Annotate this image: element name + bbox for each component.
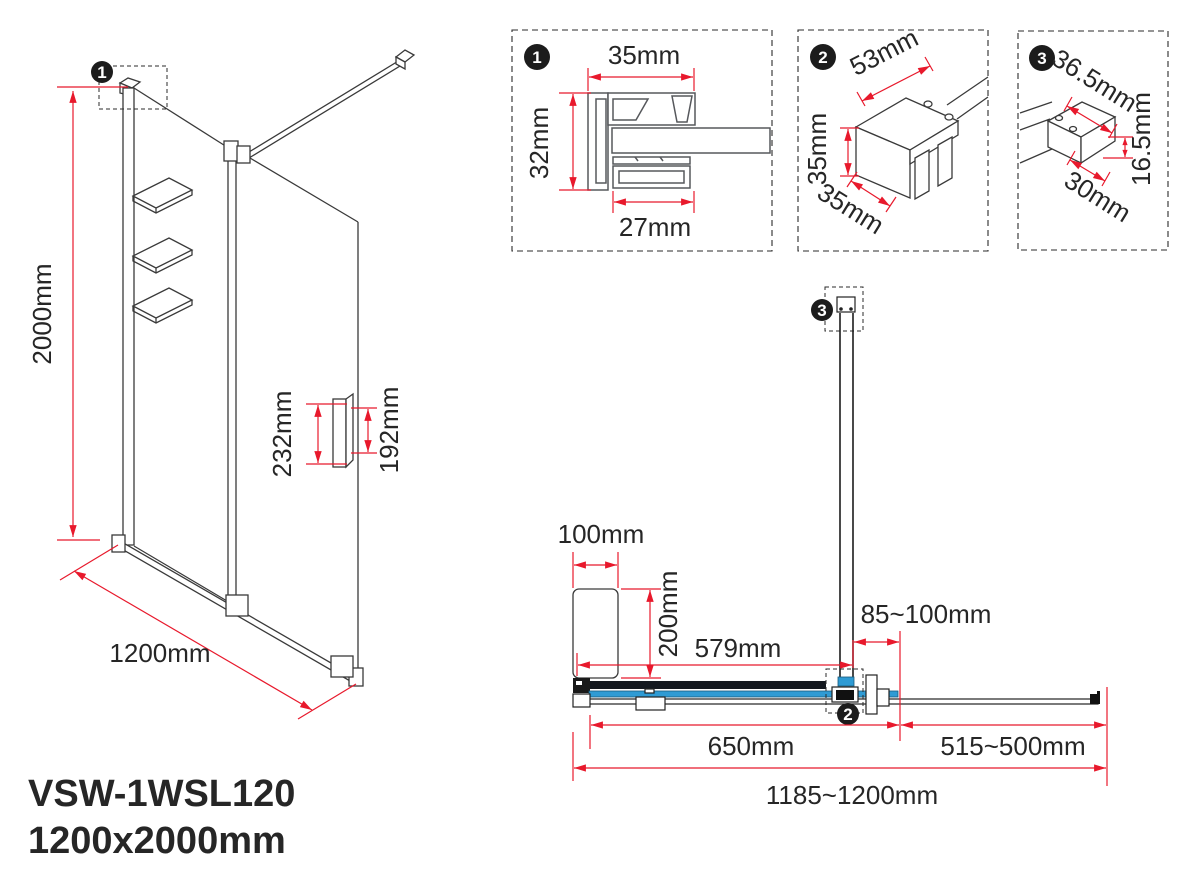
height-dimension-label: 2000mm [27,263,57,364]
profile-top-width-label: 35mm [608,40,680,70]
plan-marker-3: 3 [817,301,826,320]
shower-screen-technical-drawing: 1 2000mm 1200mm 232mm 192mm [0,0,1177,880]
model-number: VSW-1WSL120 [28,773,295,815]
screw-icon [1070,127,1077,132]
detail-1-marker-label: 1 [97,63,106,82]
detail-3-number: 3 [1037,49,1046,68]
glass-panel-section [612,128,770,153]
screw-icon [945,114,953,120]
fixed-panel-label: 650mm [708,731,795,761]
model-size: 1200x2000mm [28,820,286,862]
offset-width-label: 100mm [558,519,645,549]
handle-centers-label: 192mm [374,387,404,474]
offset-depth-label: 200mm [653,571,683,658]
plan-marker-2: 2 [843,705,852,724]
plan-wall-profile [573,678,590,693]
plan-fixed-panel [590,681,826,689]
detail-2-number: 2 [818,48,827,67]
handle-length-label: 232mm [267,391,297,478]
bar-gap-label: 85~100mm [861,599,992,629]
screw-icon [924,101,932,107]
bracket-height-label: 16.5mm [1126,92,1156,186]
bar-offset-label: 579mm [695,633,782,663]
plan-mid-clamp [636,697,665,710]
profile-bottom-width-label: 27mm [619,212,691,242]
adjustable-panel-label: 515~500mm [940,731,1085,761]
profile-height-label: 32mm [524,107,554,179]
total-width-label: 1185~1200mm [766,780,938,810]
detail-1-number: 1 [532,48,541,67]
screw-icon [1056,116,1063,121]
width-dimension-label: 1200mm [109,638,210,668]
door-handle [333,394,353,467]
drawing-canvas: 1 2000mm 1200mm 232mm 192mm [0,0,1177,880]
clamp-height-label: 35mm [802,113,832,185]
